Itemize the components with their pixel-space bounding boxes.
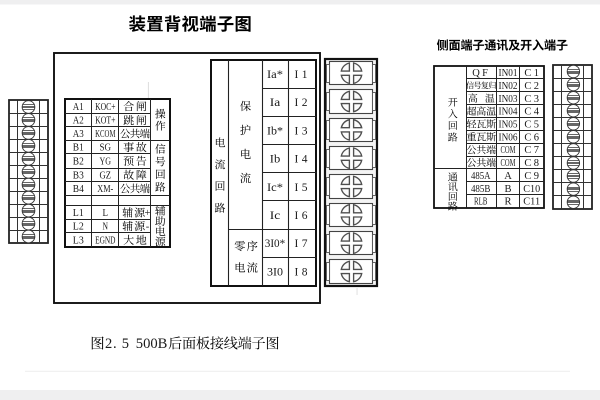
- svg-text:COM: COM: [501, 158, 516, 169]
- svg-text:L1: L1: [73, 208, 84, 219]
- svg-text:485A: 485A: [471, 171, 491, 182]
- svg-text:YG: YG: [100, 157, 112, 168]
- svg-text:I2: I2: [295, 97, 308, 109]
- svg-text:3I0*: 3I0*: [265, 238, 286, 250]
- svg-text:GZ: GZ: [100, 170, 112, 181]
- svg-text:L3: L3: [73, 236, 84, 247]
- svg-text:XM-: XM-: [97, 184, 113, 195]
- svg-text:IN01: IN01: [499, 68, 518, 79]
- svg-text:KOC+: KOC+: [95, 102, 115, 113]
- svg-text:Ia: Ia: [270, 97, 281, 109]
- svg-text:C10: C10: [523, 184, 540, 195]
- svg-text:R: R: [504, 197, 511, 208]
- svg-text:Ia*: Ia*: [267, 69, 283, 81]
- svg-text:KCOM: KCOM: [95, 129, 116, 140]
- svg-text:+: +: [145, 208, 151, 219]
- svg-text:I3: I3: [295, 125, 308, 137]
- svg-text:EGND: EGND: [95, 236, 116, 247]
- svg-text:A2: A2: [73, 116, 84, 127]
- svg-text:F: F: [482, 68, 488, 79]
- svg-text:B2: B2: [73, 157, 84, 168]
- svg-text:3I0: 3I0: [267, 266, 283, 278]
- svg-text:SG: SG: [100, 143, 112, 154]
- svg-text:A1: A1: [73, 102, 84, 113]
- svg-text:I7: I7: [295, 238, 308, 250]
- svg-text:IN04: IN04: [499, 107, 519, 118]
- svg-text:I4: I4: [295, 154, 308, 166]
- svg-text:I1: I1: [295, 69, 308, 81]
- svg-text:Q: Q: [472, 68, 480, 79]
- svg-text:COM: COM: [501, 145, 516, 156]
- svg-text:500B: 500B: [136, 336, 168, 352]
- svg-text:B3: B3: [73, 170, 84, 181]
- svg-text:IN02: IN02: [499, 81, 518, 92]
- svg-text:IN03: IN03: [499, 94, 518, 105]
- svg-text:L: L: [103, 208, 109, 219]
- svg-text:I8: I8: [295, 266, 308, 278]
- svg-text:Ib: Ib: [270, 154, 281, 166]
- svg-text:I6: I6: [295, 210, 308, 222]
- svg-text:RLB: RLB: [474, 197, 488, 208]
- svg-text:IN05: IN05: [499, 120, 518, 131]
- svg-text:485B: 485B: [471, 184, 491, 195]
- svg-text:A: A: [504, 171, 512, 182]
- svg-text:IN06: IN06: [499, 132, 518, 143]
- svg-text:Ic: Ic: [270, 210, 281, 222]
- svg-text:B1: B1: [73, 143, 84, 154]
- svg-text:I5: I5: [295, 182, 308, 194]
- svg-text:L2: L2: [73, 222, 84, 233]
- svg-text:Ic*: Ic*: [267, 182, 283, 194]
- svg-text:N: N: [103, 222, 109, 233]
- svg-text:B4: B4: [73, 184, 85, 195]
- svg-text:-: -: [146, 222, 150, 233]
- svg-text:A3: A3: [73, 129, 84, 140]
- svg-text:KOT+: KOT+: [95, 116, 115, 127]
- svg-text:2. 5: 2. 5: [105, 336, 129, 352]
- svg-text:B: B: [504, 184, 511, 195]
- svg-text:Ib*: Ib*: [267, 125, 283, 137]
- svg-text:C11: C11: [523, 197, 540, 208]
